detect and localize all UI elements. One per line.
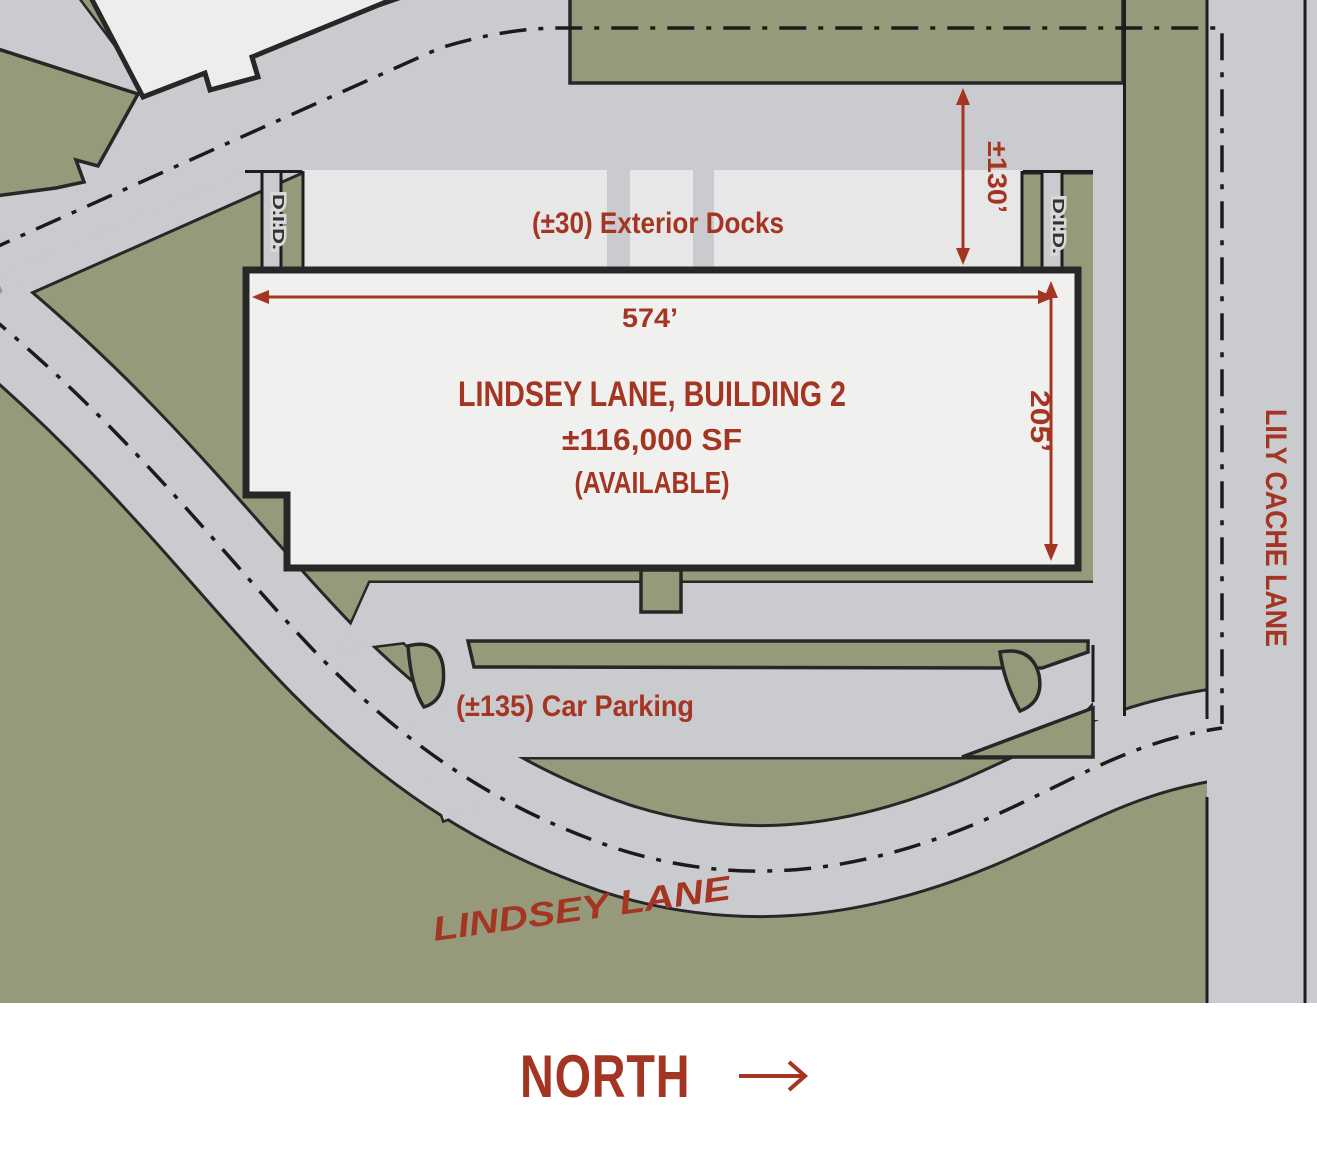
length-dimension-label: 574’ xyxy=(622,303,678,333)
depth-dimension-label: 205’ xyxy=(1025,390,1055,452)
north-arrow-icon xyxy=(737,1056,821,1096)
site-plan-svg: (±30) Exterior Docks 574’ LINDSEY LANE, … xyxy=(0,0,1317,1003)
north-median xyxy=(570,0,1123,83)
did-label-left: D.I.D. xyxy=(269,194,286,250)
site-plan-map: (±30) Exterior Docks 574’ LINDSEY LANE, … xyxy=(0,0,1317,1003)
east-side-drive xyxy=(1093,160,1123,720)
building-status-label: (AVAILABLE) xyxy=(575,465,730,500)
lily-cache-lane-label: LILY CACHE LANE xyxy=(1259,409,1292,647)
building-name-label: LINDSEY LANE, BUILDING 2 xyxy=(458,375,846,414)
court-dimension-label: ±130’ xyxy=(982,141,1012,213)
north-legend: NORTH xyxy=(0,1003,1317,1149)
landscape-tab xyxy=(641,570,681,612)
north-label: NORTH xyxy=(520,1042,690,1111)
building-area-label: ±116,000 SF xyxy=(562,422,742,457)
car-parking-label: (±135) Car Parking xyxy=(456,690,694,723)
parking-island-strip xyxy=(468,641,1088,668)
did-label-right: D.I.D. xyxy=(1049,198,1066,254)
exterior-docks-label: (±30) Exterior Docks xyxy=(532,207,784,240)
